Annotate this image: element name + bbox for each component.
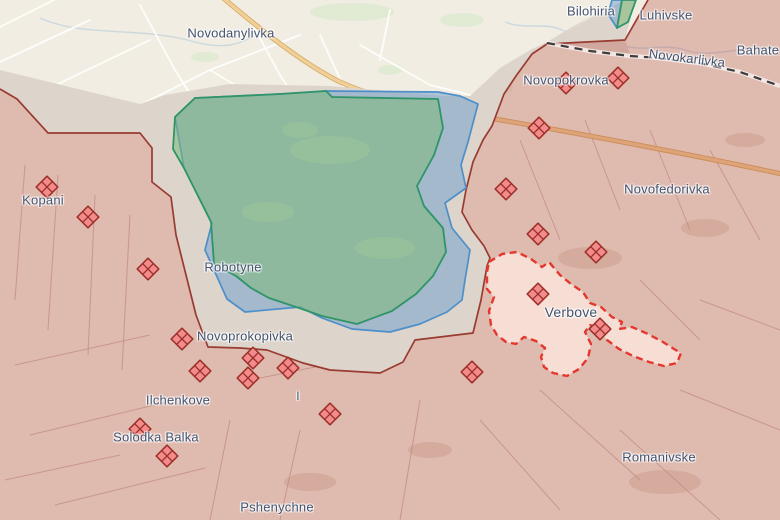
war-map-svg[interactable] (0, 0, 780, 520)
map-canvas[interactable]: NovodanylivkaBilohiriaLuhivskeNovokarliv… (0, 0, 780, 520)
